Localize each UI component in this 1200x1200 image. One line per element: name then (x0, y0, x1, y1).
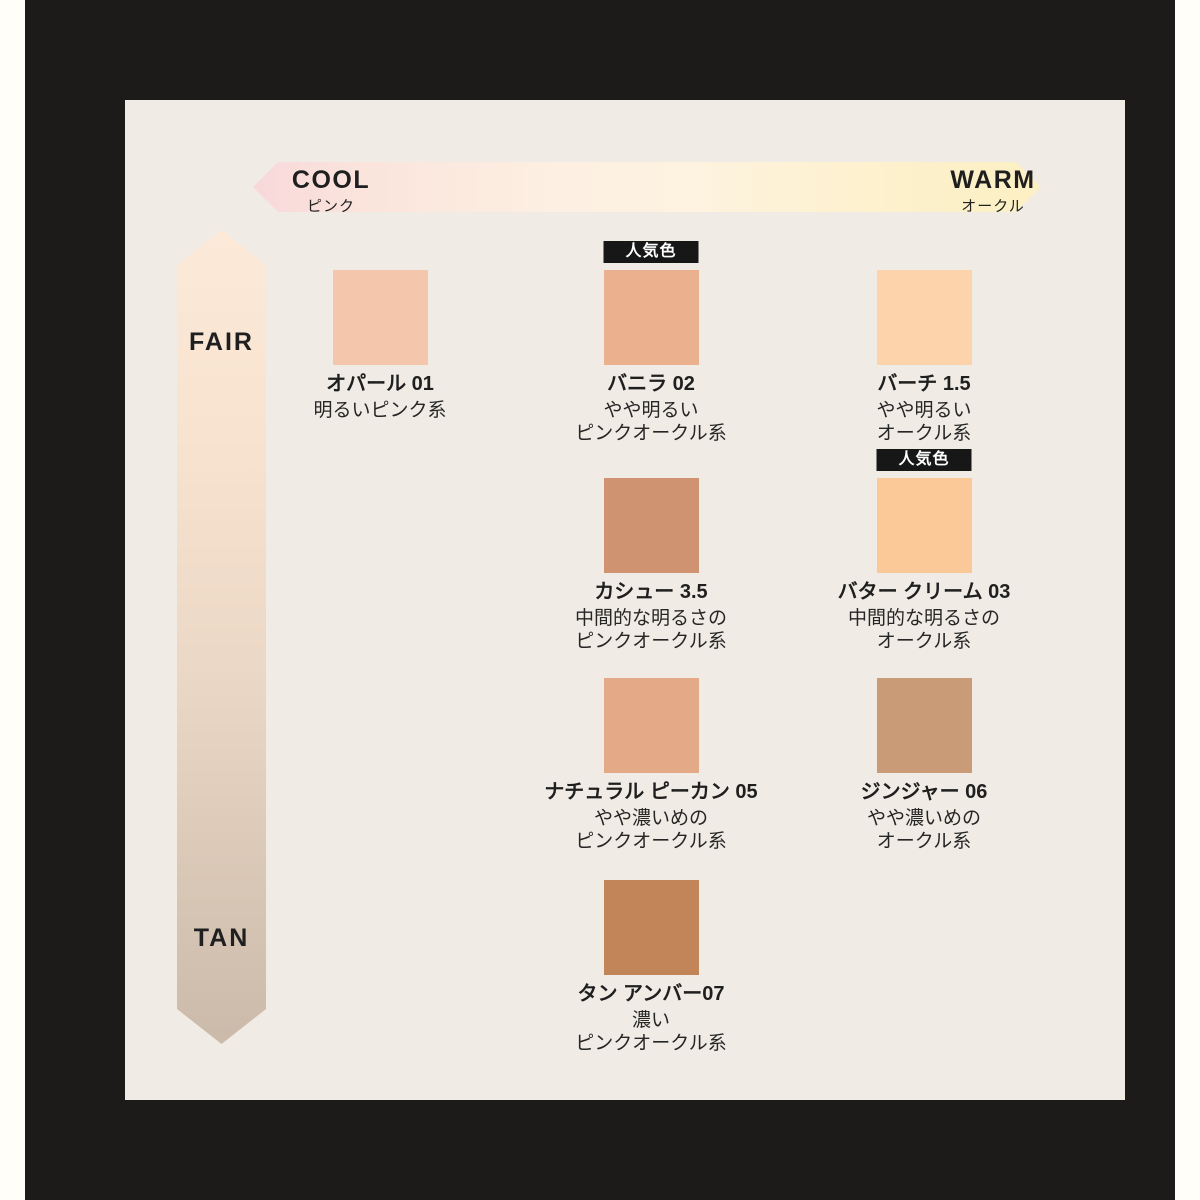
tan-axis-label: TAN (177, 926, 266, 951)
shade-description: 濃いピンクオークル系 (511, 1009, 791, 1055)
shade-cell-vanilla-02: 人気色バニラ 02やや明るいピンクオークル系 (511, 270, 791, 445)
shade-name: オパール 01 (240, 374, 520, 394)
shade-chart-card: COOL ピンク WARM オークル FAIR TAN オパール 01明るいピン… (125, 100, 1125, 1100)
shade-description-line: 明るいピンク系 (313, 400, 446, 421)
cool-axis-title: COOL (275, 168, 387, 193)
shade-name: タン アンバー07 (511, 984, 791, 1004)
cool-axis-label: COOL ピンク (275, 168, 387, 214)
popular-badge: 人気色 (604, 241, 699, 263)
shade-cell-cashew-3-5: カシュー 3.5中間的な明るさのピンクオークル系 (511, 478, 791, 653)
page-root: COOL ピンク WARM オークル FAIR TAN オパール 01明るいピン… (0, 0, 1200, 1200)
shade-description-line: やや明るい (603, 400, 698, 421)
shade-name: カシュー 3.5 (511, 582, 791, 602)
shade-description: 明るいピンク系 (240, 399, 520, 422)
shade-swatch (604, 678, 699, 773)
shade-cell-opal-01: オパール 01明るいピンク系 (240, 270, 520, 422)
shade-swatch (877, 478, 972, 573)
shade-cell-butter-cream-03: 人気色バター クリーム 03中間的な明るさのオークル系 (784, 478, 1064, 653)
shade-cell-birch-1-5: バーチ 1.5やや明るいオークル系 (784, 270, 1064, 445)
shade-swatch (604, 880, 699, 975)
shade-description-line: やや濃いめの (594, 808, 708, 829)
shade-swatch (877, 270, 972, 365)
shade-cell-natural-pecan-05: ナチュラル ピーカン 05やや濃いめのピンクオークル系 (511, 678, 791, 853)
warm-axis-label: WARM オークル (937, 168, 1049, 214)
shade-description-line: ピンクオークル系 (575, 831, 726, 852)
shade-description-line: 濃い (632, 1010, 670, 1031)
shade-description-line: やや濃いめの (867, 808, 981, 829)
shade-description-line: オークル系 (877, 831, 971, 852)
shade-description: やや明るいピンクオークル系 (511, 399, 791, 445)
shade-name: バター クリーム 03 (784, 582, 1064, 602)
shade-description: やや明るいオークル系 (784, 399, 1064, 445)
shade-description-line: 中間的な明るさの (848, 608, 1000, 629)
warm-axis-subtitle: オークル (937, 199, 1049, 214)
shade-description-line: オークル系 (877, 631, 971, 652)
shade-name: ジンジャー 06 (784, 782, 1064, 802)
shade-description-line: ピンクオークル系 (575, 631, 726, 652)
shade-swatch (604, 478, 699, 573)
cool-axis-subtitle: ピンク (275, 199, 387, 214)
shade-name: バーチ 1.5 (784, 374, 1064, 394)
shade-name: ナチュラル ピーカン 05 (511, 782, 791, 802)
shade-description: 中間的な明るさのオークル系 (784, 607, 1064, 653)
shade-description-line: 中間的な明るさの (575, 608, 727, 629)
dark-frame: COOL ピンク WARM オークル FAIR TAN オパール 01明るいピン… (25, 0, 1175, 1200)
shade-description: やや濃いめのオークル系 (784, 807, 1064, 853)
shade-description-line: やや明るい (876, 400, 971, 421)
shade-description: やや濃いめのピンクオークル系 (511, 807, 791, 853)
shade-description-line: ピンクオークル系 (575, 423, 726, 444)
shade-swatch (333, 270, 428, 365)
shade-swatch (877, 678, 972, 773)
shade-description: 中間的な明るさのピンクオークル系 (511, 607, 791, 653)
shade-description-line: ピンクオークル系 (575, 1033, 726, 1054)
popular-badge: 人気色 (877, 449, 972, 471)
shade-swatch (604, 270, 699, 365)
shade-cell-tan-amber-07: タン アンバー07濃いピンクオークル系 (511, 880, 791, 1055)
shade-name: バニラ 02 (511, 374, 791, 394)
shade-description-line: オークル系 (877, 423, 971, 444)
shade-cell-ginger-06: ジンジャー 06やや濃いめのオークル系 (784, 678, 1064, 853)
warm-axis-title: WARM (937, 168, 1049, 193)
